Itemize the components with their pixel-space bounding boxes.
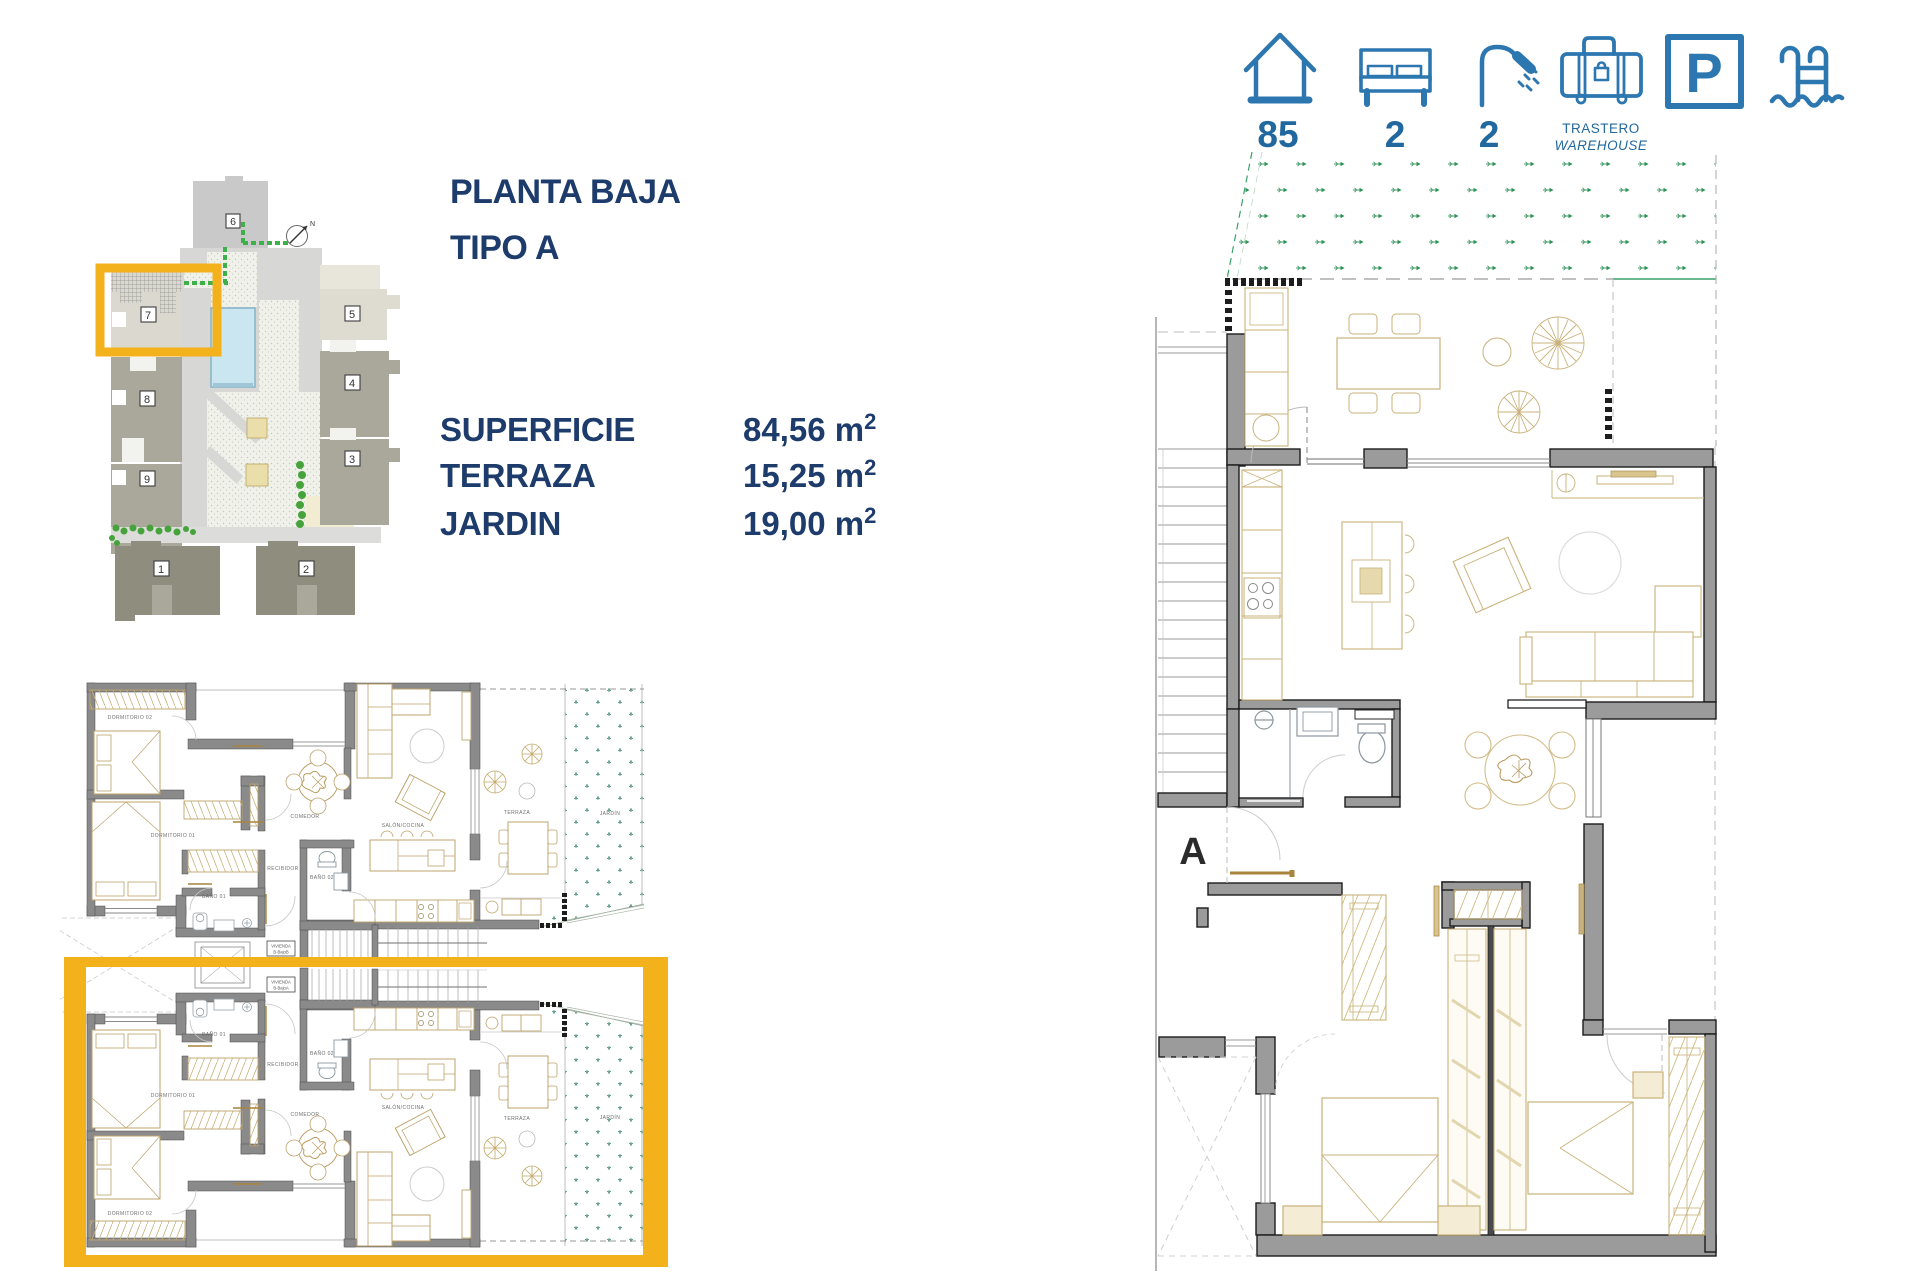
svg-text:9: 9 — [144, 474, 150, 486]
svg-text:DORMITORIO 01: DORMITORIO 01 — [151, 1093, 196, 1099]
svg-text:TRASTERO: TRASTERO — [1562, 121, 1640, 136]
svg-text:3: 3 — [349, 454, 355, 466]
svg-text:BAÑO 02: BAÑO 02 — [310, 1050, 334, 1057]
svg-text:JARDÍN: JARDÍN — [600, 1114, 620, 1121]
svg-text:RECIBIDOR: RECIBIDOR — [267, 1062, 298, 1068]
svg-text:6: 6 — [230, 216, 236, 228]
svg-text:JARDÍN: JARDÍN — [600, 810, 620, 817]
svg-text:7: 7 — [145, 310, 151, 322]
svg-text:BAÑO 01: BAÑO 01 — [202, 893, 226, 900]
svg-text:P: P — [1685, 41, 1722, 104]
svg-text:B-BajoA: B-BajoA — [273, 986, 289, 991]
svg-text:2: 2 — [303, 564, 309, 576]
svg-text:A: A — [1179, 831, 1206, 873]
svg-text:DORMITORIO 01: DORMITORIO 01 — [151, 833, 196, 839]
svg-text:VIVIENDA: VIVIENDA — [271, 944, 291, 949]
svg-text:DORMITORIO 02: DORMITORIO 02 — [108, 715, 153, 721]
svg-text:DORMITORIO 02: DORMITORIO 02 — [108, 1211, 153, 1217]
svg-text:BAÑO 02: BAÑO 02 — [310, 874, 334, 881]
svg-text:N: N — [310, 221, 315, 228]
svg-text:COMEDOR: COMEDOR — [291, 1112, 320, 1118]
svg-text:4: 4 — [349, 378, 355, 390]
svg-text:TERRAZA: TERRAZA — [504, 810, 530, 816]
svg-text:TERRAZA: TERRAZA — [504, 1116, 530, 1122]
svg-text:8: 8 — [144, 394, 150, 406]
svg-text:RECIBIDOR: RECIBIDOR — [267, 866, 298, 872]
svg-text:SALÓN/COCINA: SALÓN/COCINA — [382, 1104, 425, 1111]
svg-text:BAÑO 01: BAÑO 01 — [202, 1031, 226, 1038]
svg-text:COMEDOR: COMEDOR — [291, 814, 320, 820]
svg-text:B-BajoB: B-BajoB — [273, 950, 289, 955]
svg-text:SALÓN/COCINA: SALÓN/COCINA — [382, 822, 425, 829]
svg-text:1: 1 — [158, 564, 164, 576]
svg-text:VIVIENDA: VIVIENDA — [271, 980, 291, 985]
svg-text:5: 5 — [349, 309, 355, 321]
